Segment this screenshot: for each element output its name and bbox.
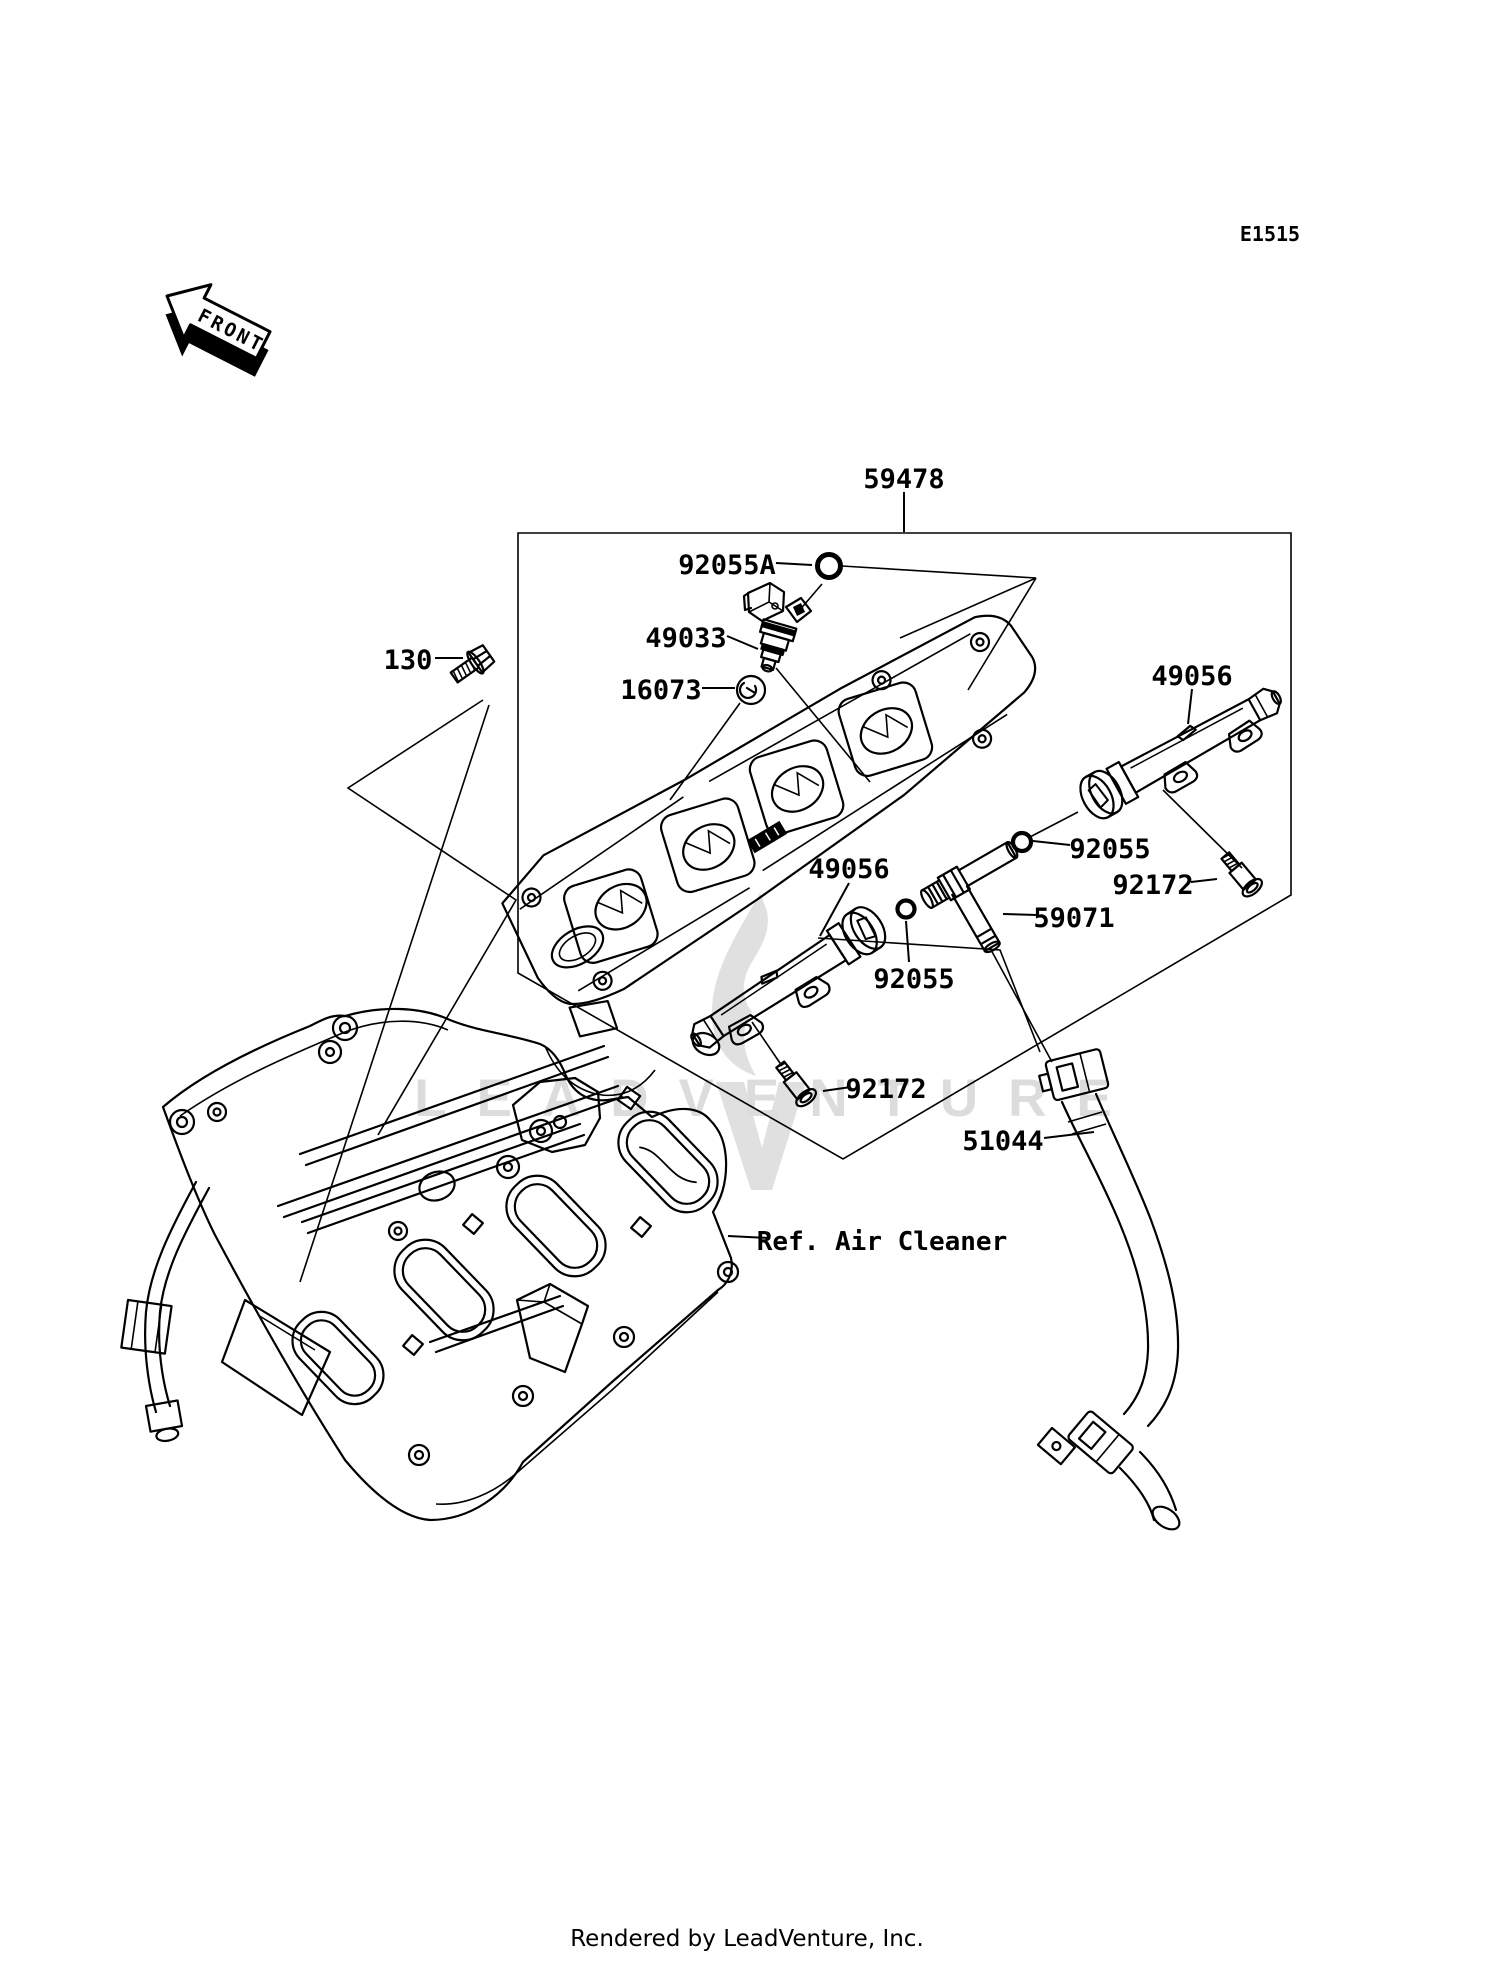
o-ring-right-drawing bbox=[1013, 833, 1031, 851]
part-label-92055-right[interactable]: 92055 bbox=[1069, 834, 1150, 865]
part-label-16073[interactable]: 16073 bbox=[620, 675, 701, 706]
part-label-49056-left[interactable]: 49056 bbox=[808, 854, 889, 885]
part-label-92172-left[interactable]: 92172 bbox=[845, 1074, 926, 1105]
front-arrow: FRONT bbox=[146, 269, 283, 390]
part-label-51044[interactable]: 51044 bbox=[962, 1126, 1043, 1157]
part-label-59071[interactable]: 59071 bbox=[1033, 903, 1114, 934]
group-callout-box bbox=[518, 533, 1291, 1159]
manifold-plate-drawing bbox=[485, 587, 1086, 1050]
flange-bolt-drawing bbox=[447, 643, 496, 688]
sheet-code: E1515 bbox=[1240, 222, 1300, 246]
screw-right-drawing bbox=[1216, 848, 1264, 900]
part-label-92055-left[interactable]: 92055 bbox=[873, 964, 954, 995]
part-label-59478[interactable]: 59478 bbox=[863, 464, 944, 495]
reference-note-air-cleaner[interactable]: Ref. Air Cleaner bbox=[757, 1227, 1007, 1257]
part-label-92055A[interactable]: 92055A bbox=[678, 550, 776, 581]
part-label-92172-right[interactable]: 92172 bbox=[1112, 870, 1193, 901]
leader-lines bbox=[435, 563, 1217, 1238]
injector-drawing bbox=[744, 583, 811, 676]
part-label-49056-right[interactable]: 49056 bbox=[1151, 661, 1232, 692]
part-label-130[interactable]: 130 bbox=[384, 645, 433, 676]
parts-diagram-canvas: LEADVENTURE FRONT E1515 bbox=[0, 0, 1500, 1962]
o-ring-left-drawing bbox=[898, 901, 915, 918]
footer-credit: Rendered by LeadVenture, Inc. bbox=[570, 1926, 924, 1952]
part-label-49033[interactable]: 49033 bbox=[645, 623, 726, 654]
fuel-rail-left-drawing bbox=[681, 901, 900, 1073]
insulator-washer-drawing bbox=[737, 676, 765, 704]
leadventure-flame-icon bbox=[712, 893, 806, 1190]
o-ring-upper-drawing bbox=[818, 555, 841, 578]
